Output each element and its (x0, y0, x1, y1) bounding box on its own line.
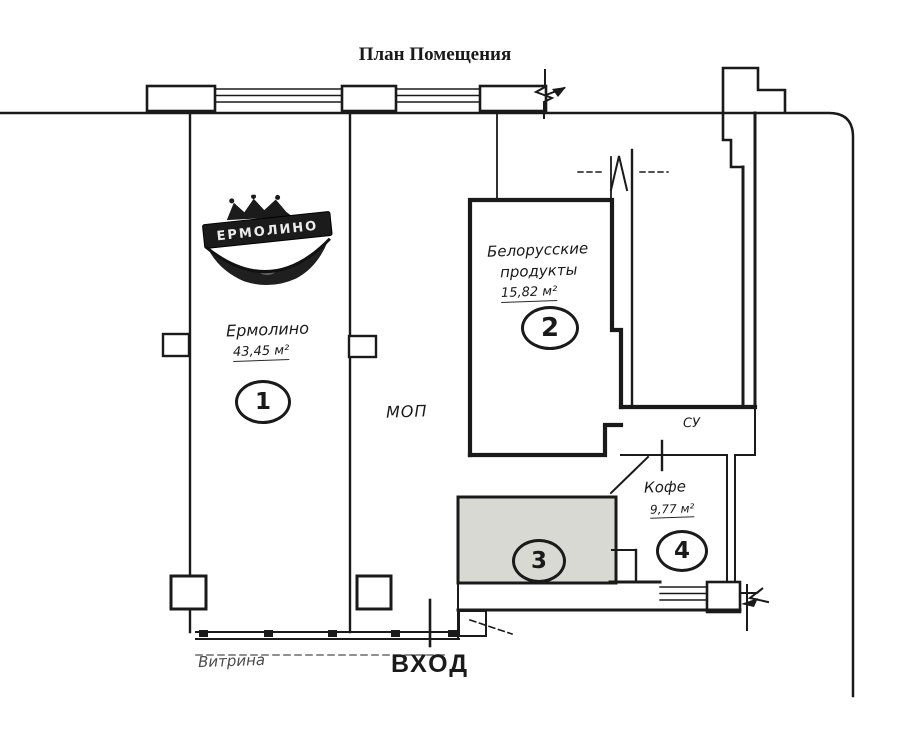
room1-walls (163, 113, 391, 632)
room1-area-label: 43,45 м² (233, 343, 290, 362)
page-title: План Помещения (335, 44, 535, 66)
room2-name-line2: продукты (500, 261, 578, 282)
up-arrow-icon (611, 156, 627, 190)
ermolino-logo: ЕРМОЛИНО (196, 190, 341, 295)
ermolino-logo-icon: ЕРМОЛИНО (196, 190, 341, 295)
room4-number-badge: 4 (656, 530, 708, 572)
room3-number-badge: 3 (512, 539, 566, 583)
room4-name-label: Кофе (644, 477, 686, 496)
room1-number-badge: 1 (235, 380, 291, 424)
top-window-wall (147, 86, 546, 111)
entrance-label: ВХОД (391, 650, 469, 679)
arrow-bottom-icon (741, 598, 758, 607)
logo-bowl (208, 241, 330, 288)
diagonal-wall (611, 457, 648, 493)
floor-plan-page: ЕРМОЛИНО План Помещения Ермолино 43,45 м… (0, 0, 922, 748)
room4-area-label: 9,77 м² (650, 501, 695, 519)
common-area-label: МОП (386, 401, 428, 421)
room1-name-label: Ермолино (226, 319, 310, 341)
room2-area-label: 15,82 м² (501, 284, 558, 303)
room2-name-line1: Белорусские (487, 239, 589, 261)
shaft-wall (723, 68, 785, 407)
room2-number-badge: 2 (521, 306, 579, 350)
plan-linework (0, 0, 922, 748)
showcase-label: Витрина (198, 651, 266, 671)
sanitary-unit-label: СУ (683, 416, 701, 432)
